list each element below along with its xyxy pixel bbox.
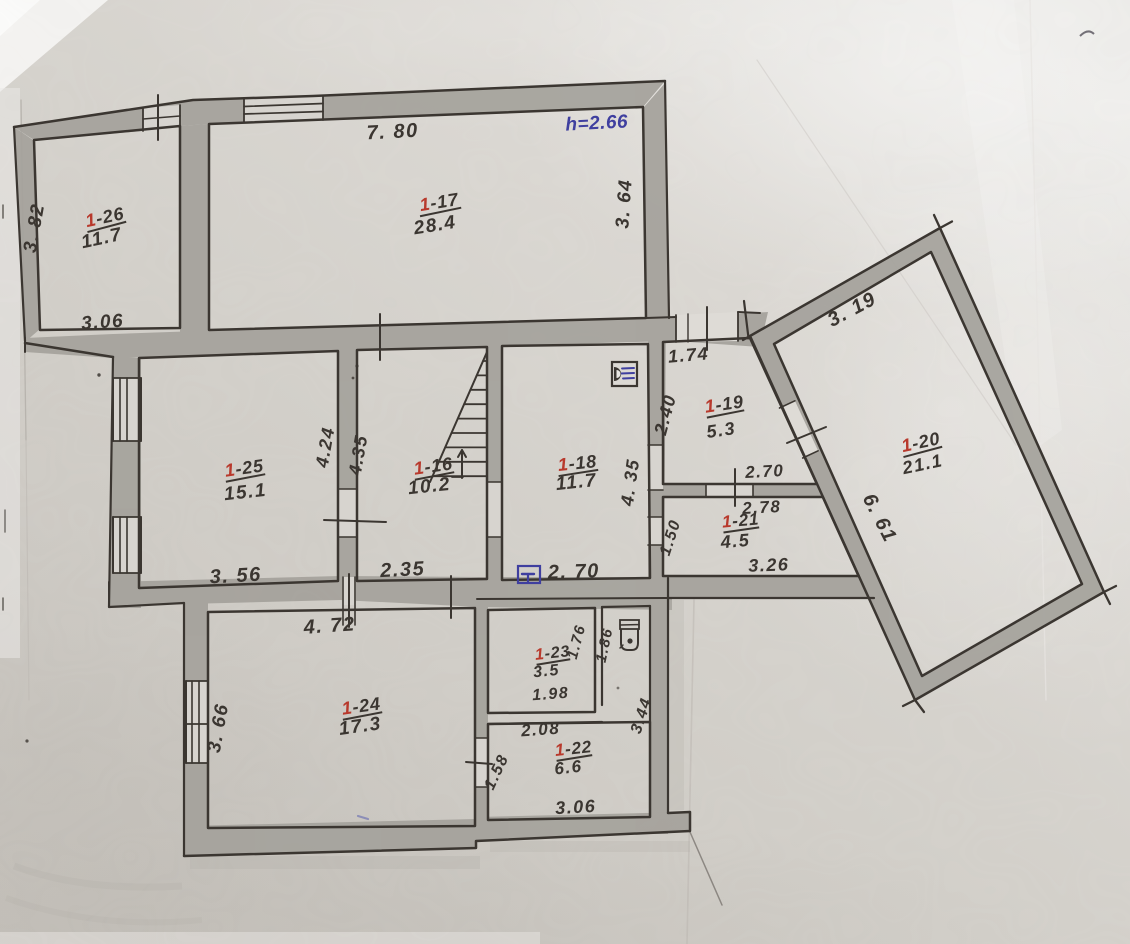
svg-text:3. 56: 3. 56 (209, 564, 262, 589)
svg-text:4.5: 4.5 (719, 530, 751, 553)
svg-text:4. 72: 4. 72 (302, 613, 356, 639)
svg-text:1.98: 1.98 (532, 685, 570, 705)
svg-text:3.5: 3.5 (532, 662, 560, 682)
svg-text:15.1: 15.1 (223, 480, 268, 505)
svg-text:6.6: 6.6 (553, 757, 583, 779)
svg-text:3. 64: 3. 64 (612, 178, 636, 229)
svg-text:7. 80: 7. 80 (366, 120, 419, 145)
svg-text:11.7: 11.7 (555, 470, 599, 495)
svg-text:3.06: 3.06 (555, 796, 597, 818)
svg-text:5.3: 5.3 (705, 418, 737, 442)
svg-text:2. 70: 2. 70 (546, 560, 600, 584)
svg-text:2.08: 2.08 (519, 719, 560, 741)
svg-text:1.74: 1.74 (667, 343, 710, 367)
svg-text:h=2.66: h=2.66 (565, 111, 629, 135)
svg-text:2.70: 2.70 (744, 461, 785, 482)
svg-text:3.26: 3.26 (748, 554, 790, 575)
svg-text:10.2: 10.2 (407, 474, 452, 499)
svg-text:2.35: 2.35 (379, 558, 426, 582)
svg-text:3.06: 3.06 (80, 311, 124, 335)
